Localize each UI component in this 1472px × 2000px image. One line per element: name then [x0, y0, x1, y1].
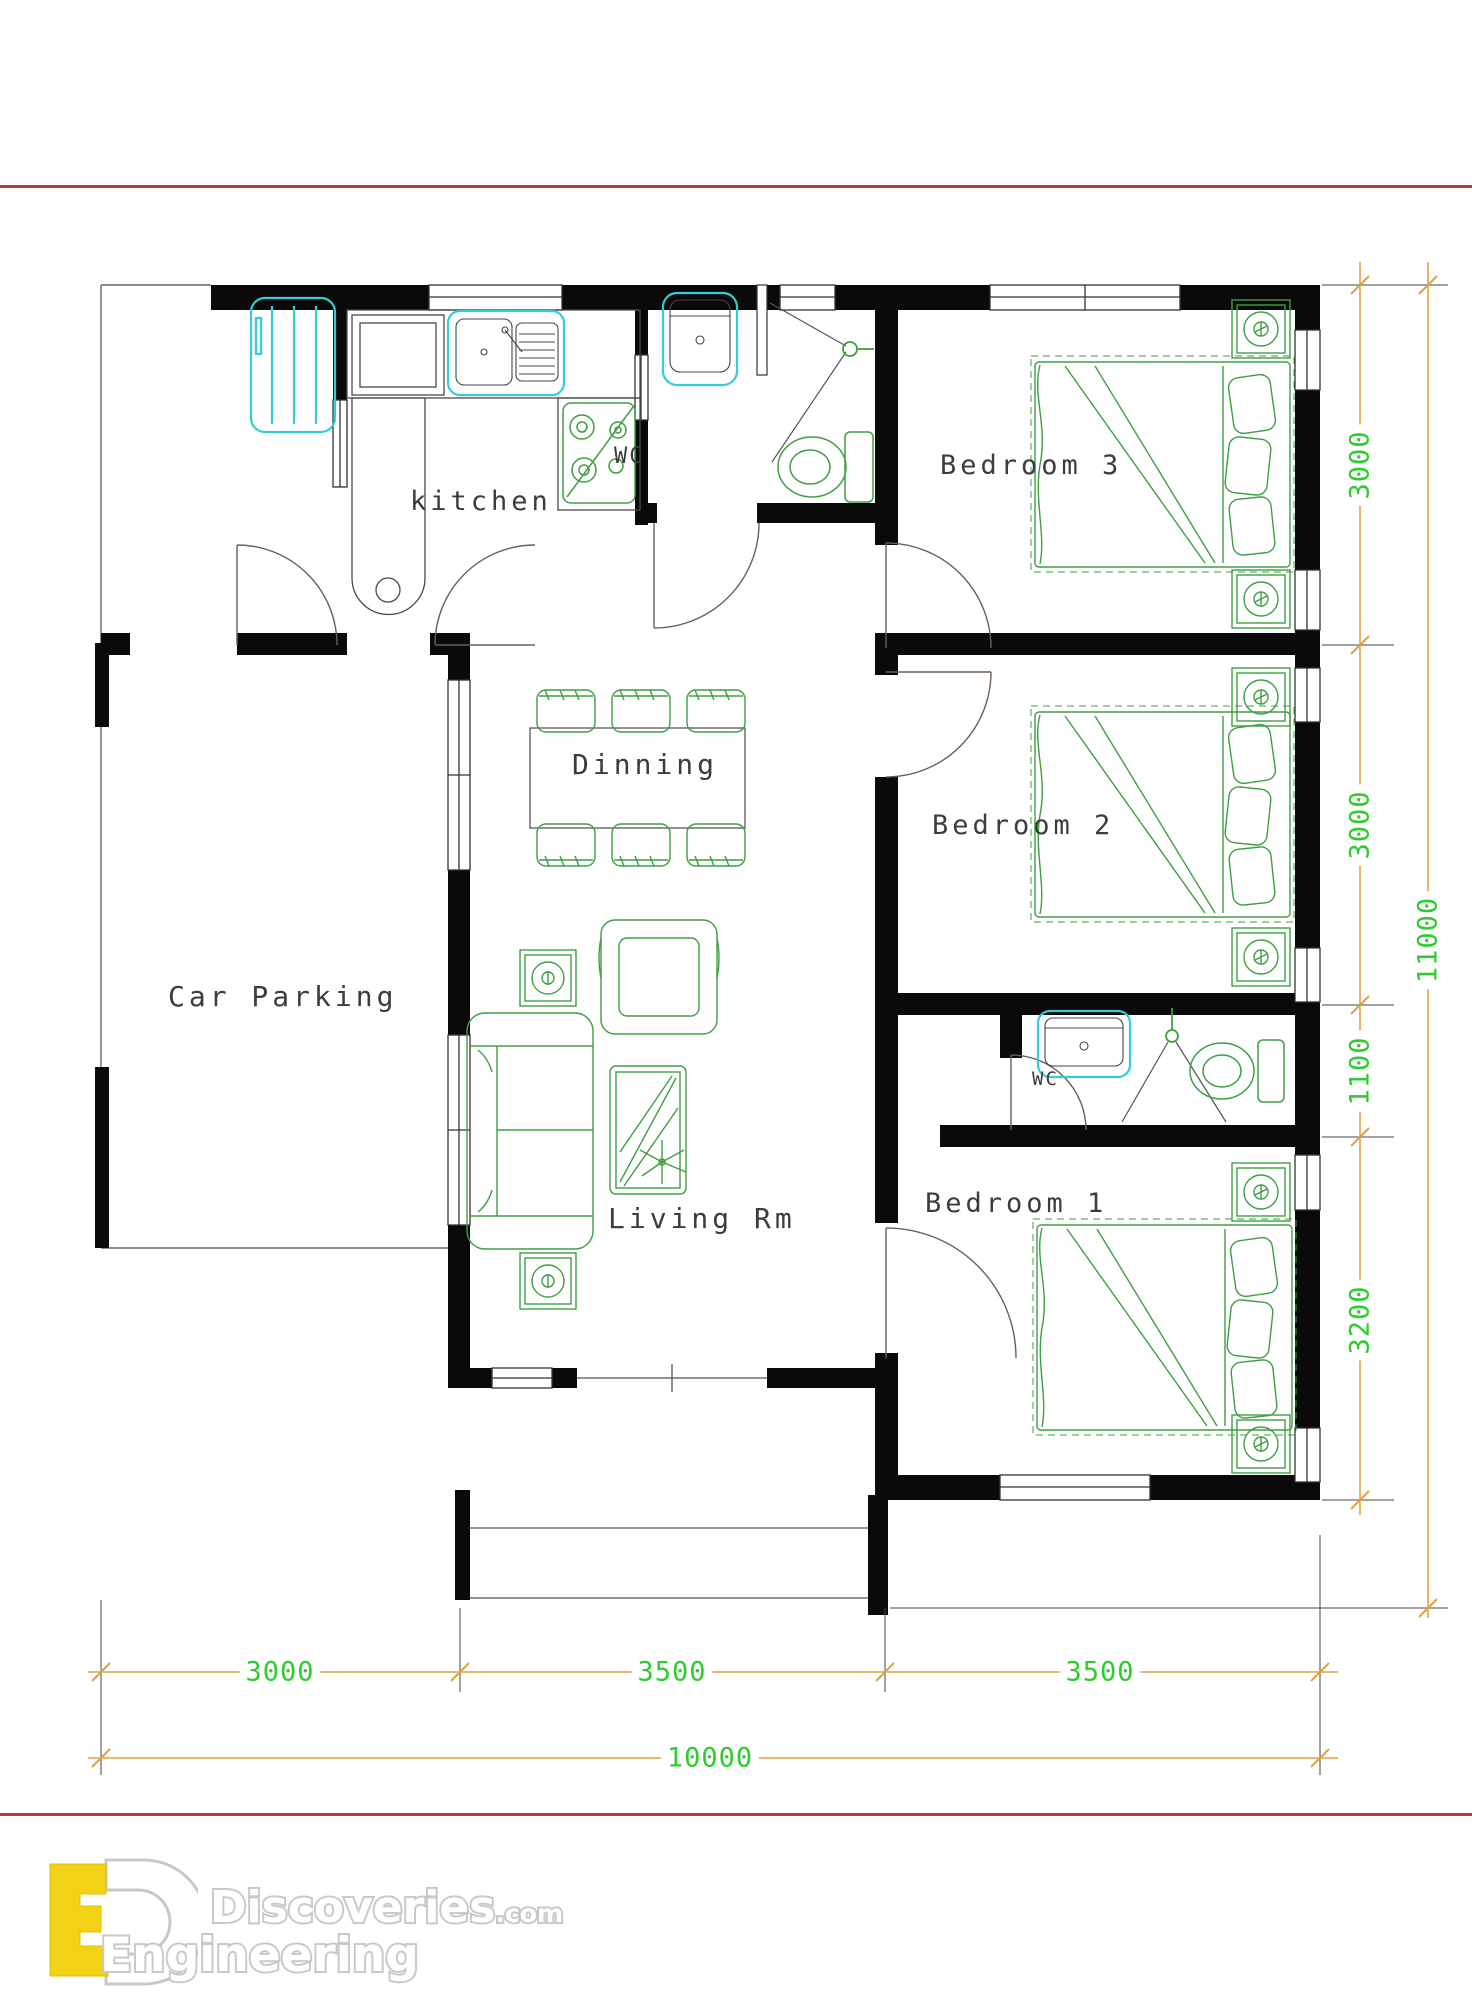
kitchen-sink-icon — [448, 311, 564, 395]
living-room-furniture — [467, 920, 719, 1309]
bed-icon — [1033, 1219, 1296, 1435]
room-label-living-room: Living Rm — [608, 1202, 796, 1235]
coffee-table-icon — [610, 1066, 686, 1194]
fridge-icon — [251, 298, 335, 432]
lamp-table-icon — [520, 950, 576, 1006]
dim-bottom-right: 3500 — [1059, 1657, 1140, 1688]
entrance-and-porch-lines — [470, 1364, 868, 1598]
sofa-icon — [467, 1013, 593, 1249]
toilet-icon — [1190, 1040, 1284, 1102]
dim-bottom-carport: 3000 — [239, 1657, 320, 1688]
kitchen-counter — [347, 310, 640, 615]
room-label-dinning: Dinning — [572, 748, 718, 781]
room-label-bedroom2: Bedroom 2 — [932, 810, 1114, 841]
room-label-wc-bottom: WC — [1032, 1068, 1059, 1090]
toilet-icon — [778, 432, 873, 502]
dim-right-bedroom3: 3000 — [1345, 424, 1376, 505]
dim-bottom-total: 10000 — [661, 1743, 759, 1774]
dim-bottom-middle: 3500 — [631, 1657, 712, 1688]
table-plant-icon — [640, 1140, 686, 1184]
dimension-lines — [88, 262, 1448, 1775]
beds — [1031, 356, 1296, 1435]
armchair-icon — [599, 920, 719, 1034]
room-label-bedroom3: Bedroom 3 — [940, 450, 1122, 481]
engineering-discoveries-logo: Discoveries.com Engineering — [28, 1852, 448, 2000]
room-label-bedroom1: Bedroom 1 — [925, 1188, 1107, 1219]
wc-bottom-fixtures — [1038, 1008, 1284, 1122]
nightstand-icon — [1232, 1163, 1290, 1221]
dim-right-bedroom2: 3000 — [1345, 784, 1376, 865]
wc-top-fixtures — [663, 285, 874, 502]
dim-right-wc: 1100 — [1345, 1030, 1376, 1111]
nightstands — [1232, 300, 1290, 1473]
windows — [333, 285, 1320, 1500]
nightstand-icon — [1232, 1415, 1290, 1473]
nightstand-icon — [1232, 668, 1290, 726]
logo-engineering-text: Engineering — [100, 1928, 419, 1983]
nightstand-icon — [1232, 928, 1290, 986]
carport-boundary-lines — [101, 285, 455, 1248]
logo-discoveries-text: Discoveries.com — [210, 1882, 563, 1933]
room-label-wc-top: WC — [614, 444, 645, 469]
room-label-kitchen: kitchen — [410, 486, 552, 517]
dim-right-total: 11000 — [1413, 891, 1444, 989]
lamp-table-icon — [520, 1253, 576, 1309]
room-label-car-parking: Car Parking — [168, 980, 397, 1013]
floor-plan-page: kitchen WC Bedroom 3 Dinning Bedroom 2 C… — [0, 0, 1472, 2000]
dim-right-bedroom1: 3200 — [1345, 1279, 1376, 1360]
nightstand-icon — [1232, 570, 1290, 628]
walls — [95, 285, 1320, 1615]
shower-head-icon — [843, 342, 874, 356]
